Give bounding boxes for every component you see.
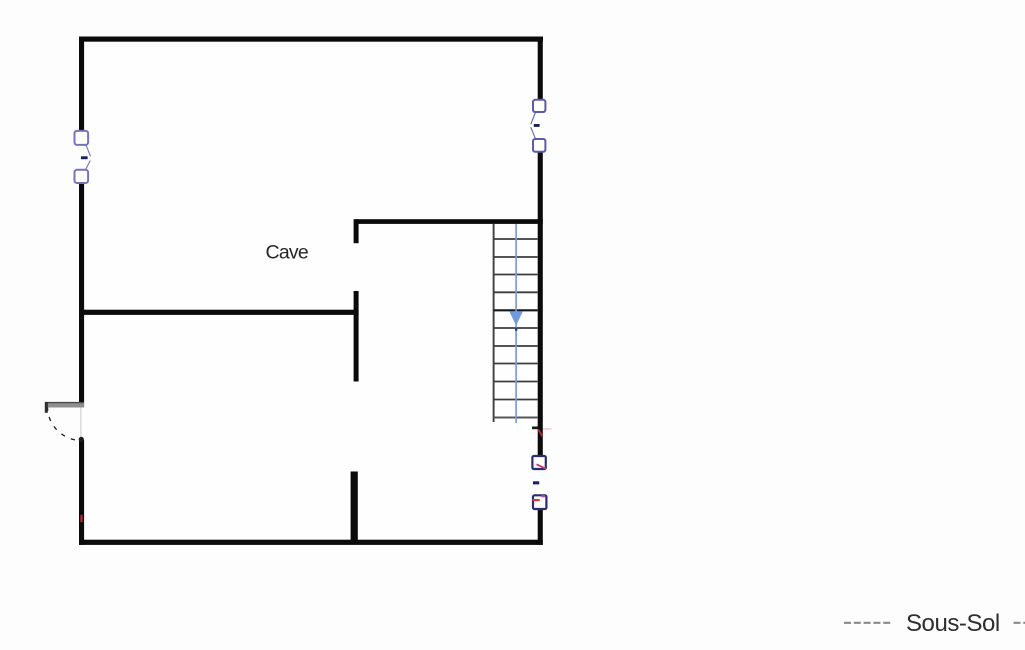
svg-text:Sous-Sol: Sous-Sol <box>906 610 1000 637</box>
svg-text:Cave: Cave <box>266 242 309 264</box>
